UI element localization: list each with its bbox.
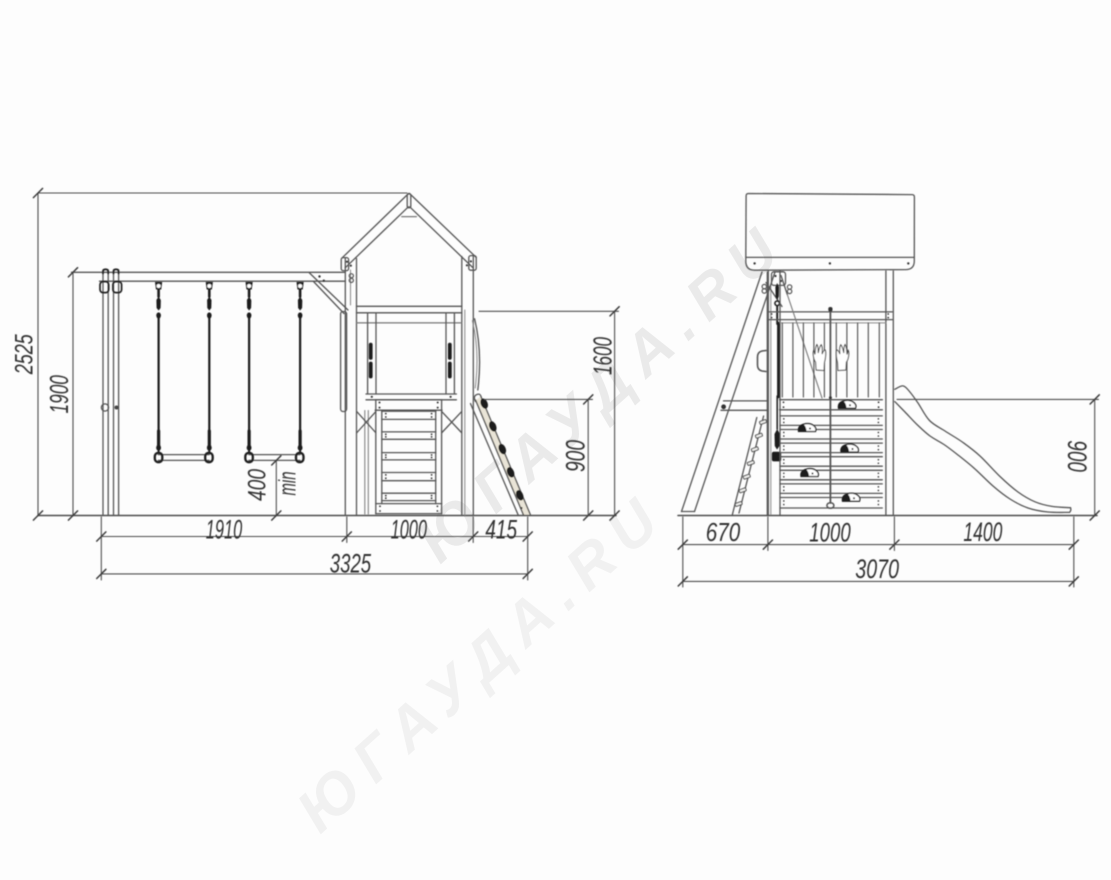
svg-text:900: 900 — [561, 440, 591, 472]
svg-text:400: 400 — [244, 469, 272, 501]
svg-text:1000: 1000 — [391, 515, 427, 545]
svg-text:1900: 1900 — [44, 375, 74, 414]
svg-text:900: 900 — [1062, 440, 1092, 472]
svg-text:1000: 1000 — [809, 518, 850, 548]
svg-text:415: 415 — [485, 515, 517, 545]
svg-text:1600: 1600 — [588, 337, 618, 375]
svg-text:min: min — [275, 472, 302, 496]
svg-text:1910: 1910 — [206, 515, 243, 545]
svg-text:3070: 3070 — [855, 554, 899, 584]
svg-text:1400: 1400 — [963, 517, 1002, 547]
svg-text:2525: 2525 — [11, 334, 39, 375]
svg-text:670: 670 — [706, 517, 741, 547]
svg-text:3325: 3325 — [330, 549, 372, 579]
